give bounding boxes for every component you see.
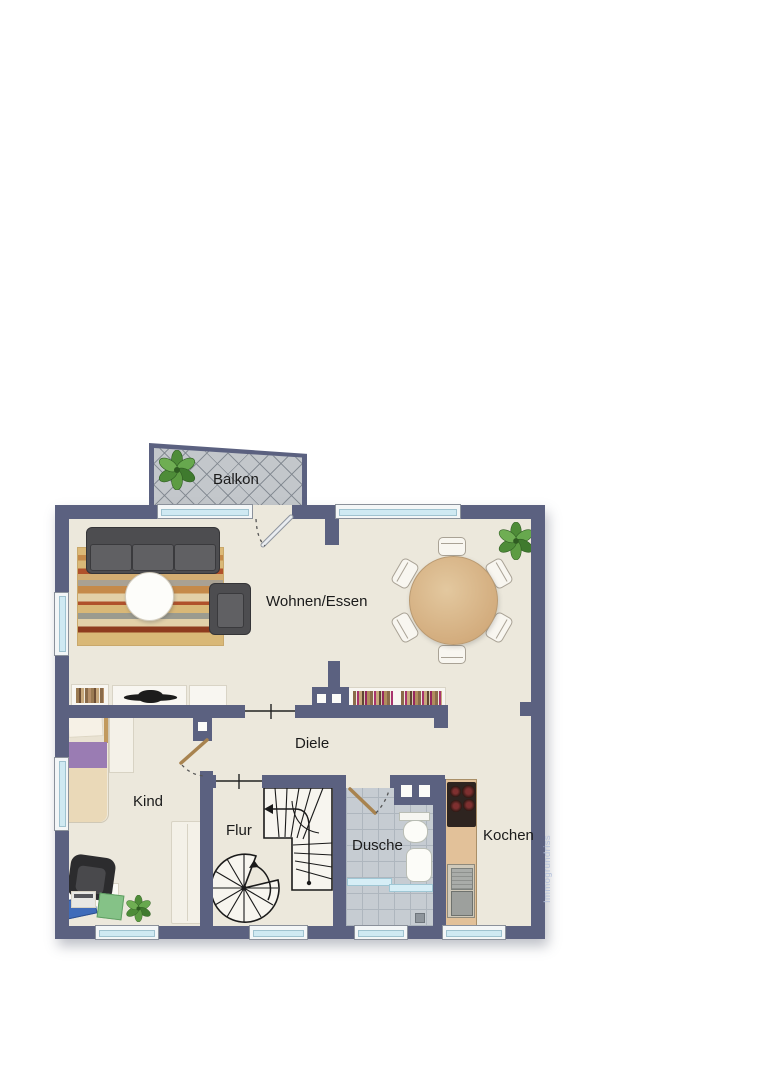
watermark: Immogrundriss xyxy=(542,835,553,903)
room-label-wohnen-essen: Wohnen/Essen xyxy=(266,593,367,610)
room-label-dusche: Dusche xyxy=(352,837,403,854)
door-swing-overlay xyxy=(0,0,763,1080)
room-label-kochen: Kochen xyxy=(483,827,534,844)
room-label-kind: Kind xyxy=(133,793,163,810)
room-label-diele: Diele xyxy=(295,735,329,752)
floorplan-page: Balkon xyxy=(0,0,763,1080)
floor-plan: Balkon xyxy=(0,0,763,1080)
room-label-flur: Flur xyxy=(226,822,252,839)
